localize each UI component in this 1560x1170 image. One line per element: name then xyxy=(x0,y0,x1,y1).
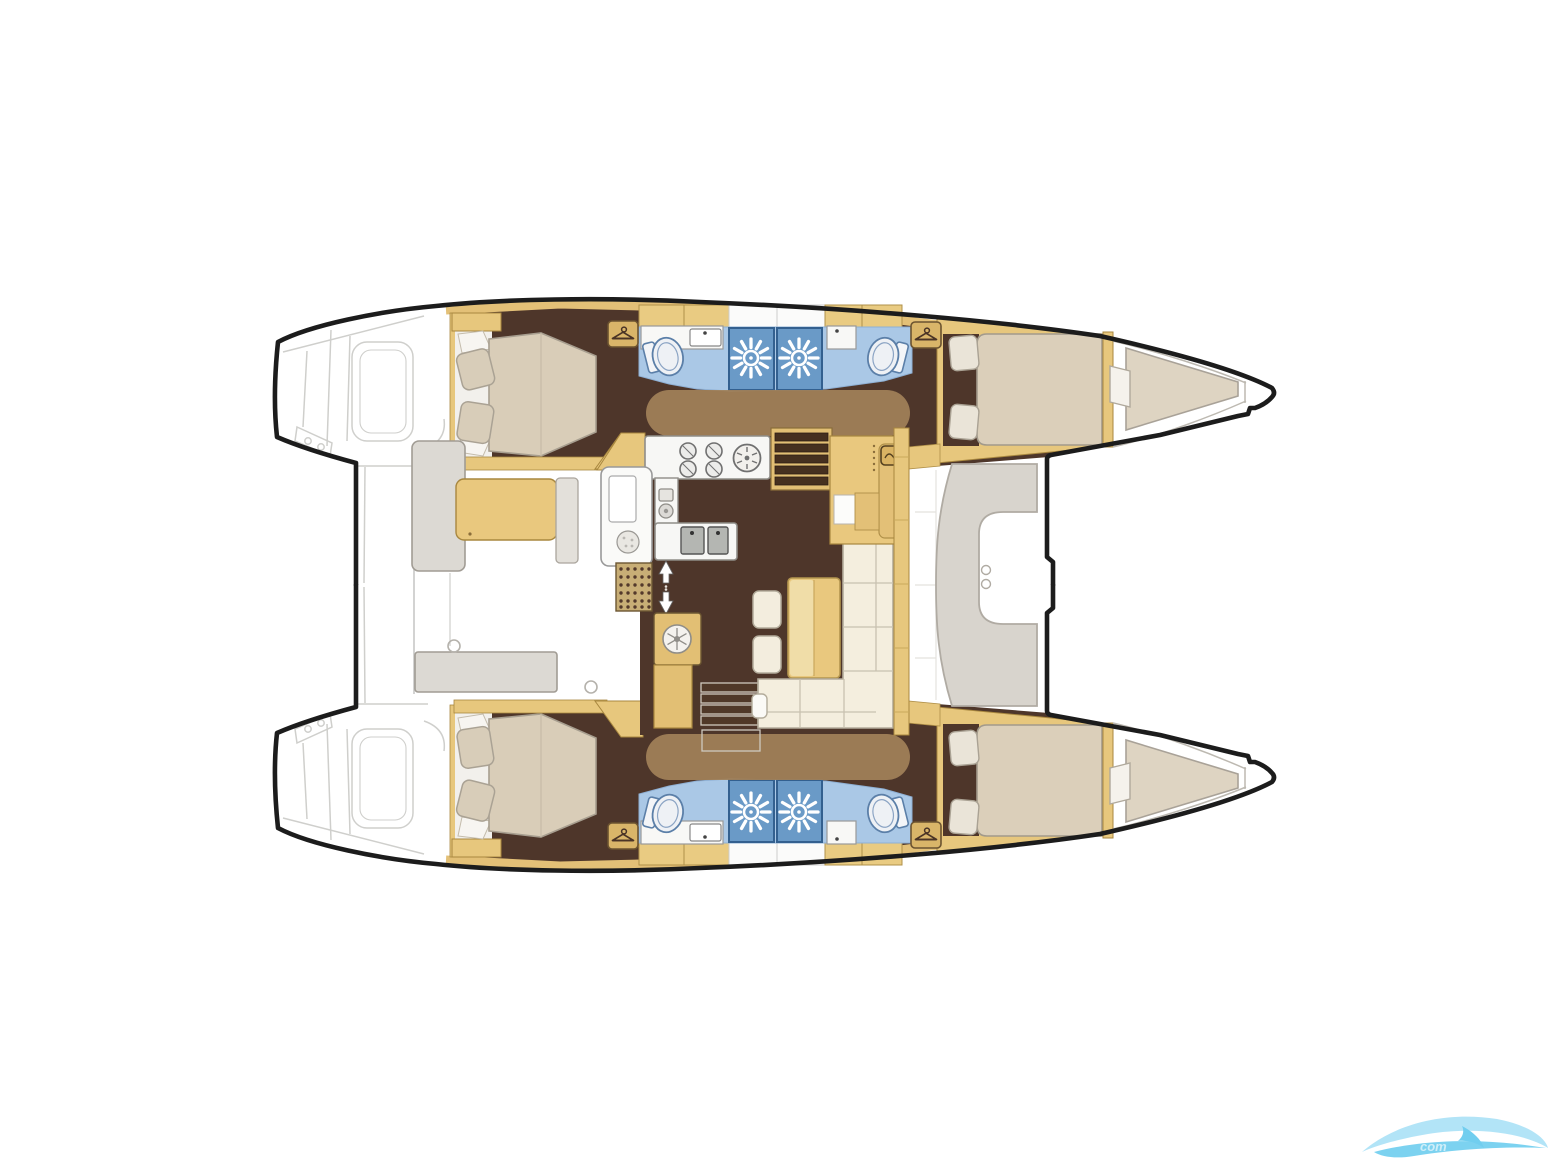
svg-text:com: com xyxy=(1420,1139,1447,1154)
